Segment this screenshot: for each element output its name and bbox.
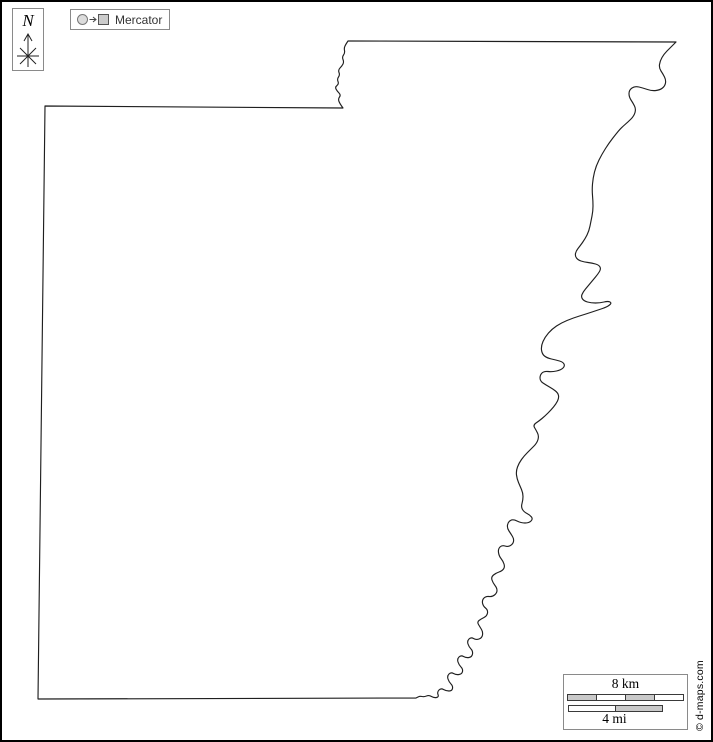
north-arrow-icon: [13, 30, 43, 70]
projection-label: Mercator: [115, 14, 162, 26]
county-outline-map: [0, 0, 713, 742]
scale-segment: [654, 695, 683, 700]
map-page: N Mercator 8 km: [0, 0, 713, 742]
compass-rose: N: [12, 8, 44, 71]
sphere-to-plane-icon: [76, 12, 110, 27]
north-label: N: [13, 11, 43, 30]
scale-segment: [596, 695, 625, 700]
scale-segment: [625, 695, 654, 700]
scale-km-label: 8 km: [564, 676, 687, 692]
county-border-path: [38, 41, 676, 699]
copyright-text: © d-maps.com: [694, 660, 706, 731]
scale-mi-label: 4 mi: [568, 711, 661, 727]
scale-segment: [568, 695, 596, 700]
scale-bar-box: 8 km 4 mi: [563, 674, 688, 730]
projection-button[interactable]: Mercator: [70, 9, 170, 30]
scale-km-bar: [567, 694, 684, 701]
